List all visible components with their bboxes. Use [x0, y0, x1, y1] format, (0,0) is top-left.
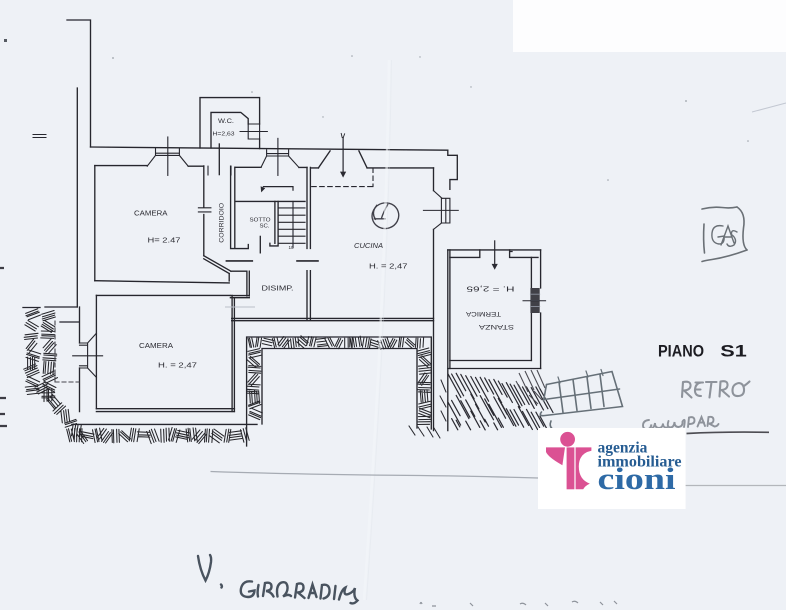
svg-text:10: 10 [289, 245, 295, 250]
svg-text:CAMERA: CAMERA [134, 209, 168, 218]
svg-text:STANZA: STANZA [478, 323, 514, 330]
svg-text:H. = 2,47: H. = 2,47 [158, 361, 197, 370]
svg-text:CAMERA: CAMERA [139, 341, 173, 350]
svg-text:CUCINA: CUCINA [354, 241, 383, 250]
svg-text:DISIMP.: DISIMP. [262, 284, 294, 293]
svg-text:cioni: cioni [598, 462, 677, 496]
svg-text:CORRIDOIO: CORRIDOIO [219, 203, 226, 243]
svg-text:TERMICA: TERMICA [465, 310, 501, 317]
svg-text:S1: S1 [720, 343, 747, 361]
svg-text:H. = 2,65: H. = 2,65 [466, 284, 514, 291]
svg-text:H= 2.47: H= 2.47 [148, 238, 181, 245]
svg-text:H. = 2,47: H. = 2,47 [369, 262, 408, 271]
svg-text:PIANO: PIANO [658, 343, 704, 361]
svg-text:H=2,63: H=2,63 [213, 132, 235, 138]
svg-text:W.C.: W.C. [218, 118, 234, 125]
svg-text:SC.: SC. [260, 223, 270, 229]
